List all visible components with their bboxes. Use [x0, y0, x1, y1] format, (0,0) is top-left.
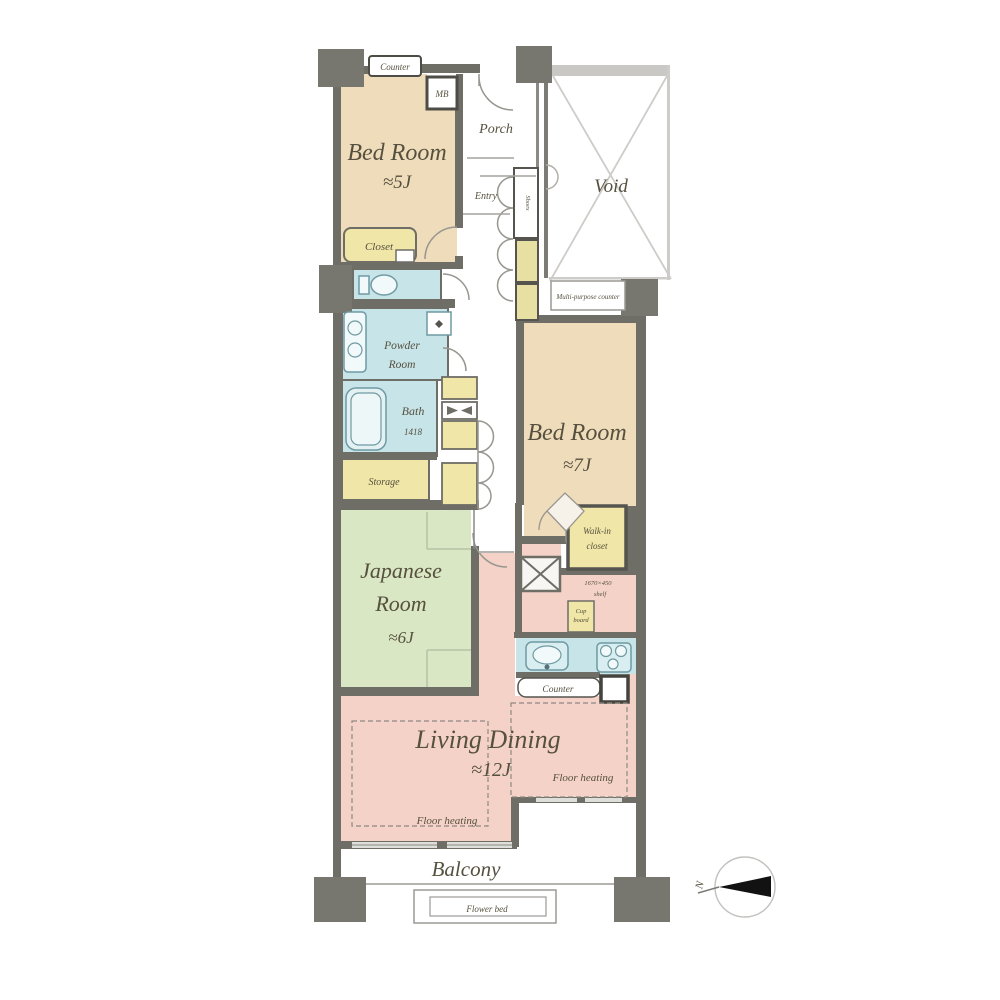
- svg-text:Closet: Closet: [365, 241, 394, 253]
- svg-text:Bed Room: Bed Room: [347, 140, 446, 166]
- svg-text:Japanese: Japanese: [360, 558, 442, 583]
- svg-text:Walk-in: Walk-in: [583, 526, 611, 536]
- svg-text:MB: MB: [435, 89, 449, 99]
- svg-text:Bed Room: Bed Room: [527, 420, 626, 446]
- svg-text:Porch: Porch: [478, 122, 513, 137]
- svg-text:Room: Room: [388, 359, 416, 371]
- svg-text:Counter: Counter: [380, 62, 410, 72]
- svg-text:Void: Void: [594, 176, 628, 197]
- svg-text:Room: Room: [374, 591, 426, 616]
- svg-text:Flower bed: Flower bed: [465, 904, 508, 914]
- svg-text:≈6J: ≈6J: [388, 628, 415, 647]
- svg-text:Living Dining: Living Dining: [414, 725, 560, 754]
- svg-text:Entry: Entry: [474, 191, 498, 202]
- svg-text:board: board: [573, 617, 589, 624]
- svg-text:≈12J: ≈12J: [471, 759, 512, 781]
- svg-text:Powder: Powder: [383, 340, 420, 352]
- svg-text:Floor heating: Floor heating: [416, 815, 478, 827]
- svg-text:Multi-purpose counter: Multi-purpose counter: [555, 293, 619, 301]
- svg-text:≈5J: ≈5J: [383, 172, 413, 193]
- svg-text:Shoes: Shoes: [524, 195, 531, 211]
- svg-text:Cup: Cup: [576, 608, 588, 615]
- svg-text:shelf: shelf: [594, 591, 607, 598]
- svg-text:1418: 1418: [404, 427, 423, 437]
- svg-text:1670×450: 1670×450: [584, 580, 612, 587]
- svg-text:Storage: Storage: [368, 477, 400, 488]
- svg-text:≈7J: ≈7J: [563, 455, 593, 476]
- svg-text:Floor heating: Floor heating: [552, 772, 614, 784]
- svg-text:Balcony: Balcony: [432, 857, 501, 881]
- svg-text:closet: closet: [587, 541, 608, 551]
- svg-text:Counter: Counter: [542, 685, 573, 695]
- svg-text:Bath: Bath: [402, 404, 425, 418]
